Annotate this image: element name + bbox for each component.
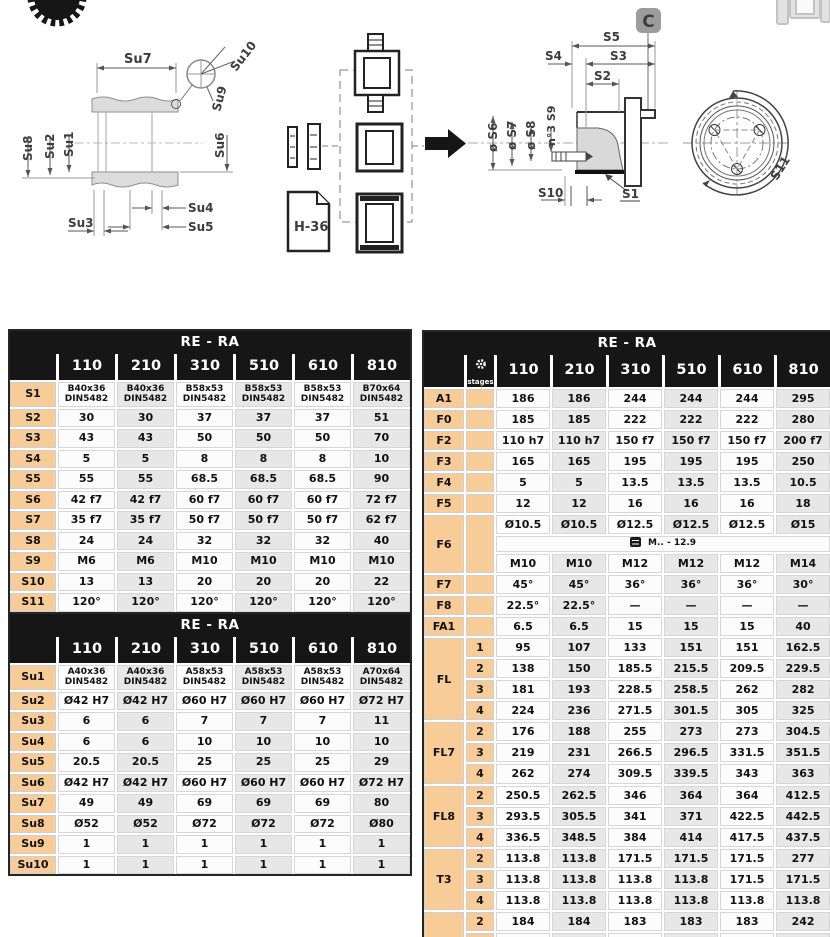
- table-cell: 422.5: [718, 805, 774, 826]
- row-label: S1: [10, 380, 56, 407]
- table-cell: 193: [550, 678, 606, 699]
- table-cell: 15: [718, 615, 774, 636]
- table-cell: A58x53 DIN5482: [292, 663, 351, 690]
- table-cell: 195: [718, 450, 774, 471]
- row-label: F0: [424, 408, 464, 429]
- table-cell: 43: [115, 427, 174, 448]
- stage-cell: 4: [464, 762, 494, 783]
- su-dimensions-table: RE - RA 110 210 310 510 610 810 Su1A40x3…: [8, 612, 412, 876]
- dim-label-s1: S1: [622, 187, 639, 201]
- row-label: S6: [10, 489, 56, 510]
- table-cell: 10.5: [774, 471, 830, 492]
- table-cell: 293.5: [494, 805, 550, 826]
- table-cell: 222: [718, 408, 774, 429]
- technical-drawings: Su10 Su9 Su7 Su8 Su2 Su1 Su6 Su3 Su4: [0, 0, 830, 322]
- table-cell: 133: [606, 636, 662, 657]
- stage-cell: 3: [464, 931, 494, 937]
- column-header: 310: [606, 355, 662, 387]
- bolt-class-label: M.. - 12.9: [648, 538, 696, 548]
- table-cell: 22: [351, 571, 410, 592]
- table-cell: 258.5: [662, 678, 718, 699]
- table-cell: A40x36 DIN5482: [115, 663, 174, 690]
- table-cell: 22.5°: [550, 594, 606, 615]
- c-badge-label: C: [642, 12, 654, 32]
- table-cell: 336.5: [494, 826, 550, 847]
- table-cell: 24: [115, 530, 174, 551]
- table-cell: 50 f7: [233, 509, 292, 530]
- table-cell: Ø42 H7: [56, 772, 115, 793]
- table-cell: 113.8: [550, 847, 606, 868]
- table-cell: 32: [233, 530, 292, 551]
- table-cell: 36°: [606, 573, 662, 594]
- row-label: FL8: [424, 784, 464, 847]
- table-cell: 200 f7: [774, 429, 830, 450]
- corner-cell: [10, 354, 56, 380]
- table-cell: 7: [174, 710, 233, 731]
- table-cell: 13: [56, 571, 115, 592]
- table-cell: 412.5: [774, 784, 830, 805]
- row-label: Su5: [10, 751, 56, 772]
- table-cell: 262: [494, 762, 550, 783]
- dim-label-s9: n°3 S9: [545, 106, 558, 146]
- table-cell: 12: [494, 492, 550, 513]
- stage-cell: 4: [464, 889, 494, 910]
- row-label: Su9: [10, 833, 56, 854]
- table-cell: Ø52: [56, 813, 115, 834]
- row-label: Su1: [10, 663, 56, 690]
- table-cell: 60 f7: [233, 489, 292, 510]
- row-label: F2: [424, 429, 464, 450]
- table-cell: 171.5: [662, 847, 718, 868]
- table-cell: 113.8: [494, 847, 550, 868]
- table-cell: 16: [606, 492, 662, 513]
- table-cell: 171.5: [774, 868, 830, 889]
- table-cell: 262: [718, 678, 774, 699]
- table-cell: Ø60 H7: [174, 772, 233, 793]
- table-cell: 107: [550, 636, 606, 657]
- table-cell: 271.5: [606, 699, 662, 720]
- table-cell: M10: [494, 552, 550, 573]
- dim-label-su4: Su4: [188, 201, 214, 215]
- table-cell: 364: [718, 784, 774, 805]
- table-cell: 266.5: [606, 741, 662, 762]
- table-cell: B40x36 DIN5482: [56, 380, 115, 407]
- table-cell: 215.5: [662, 657, 718, 678]
- gear-icon: [31, 0, 83, 23]
- table-cell: 113.8: [550, 868, 606, 889]
- table-cell: 10: [292, 731, 351, 752]
- table-cell: A58x53 DIN5482: [174, 663, 233, 690]
- column-header: 210: [115, 354, 174, 380]
- row-label: Su7: [10, 792, 56, 813]
- table-cell: 13: [115, 571, 174, 592]
- table-cell: 346: [606, 784, 662, 805]
- table-cell: 113.8: [662, 868, 718, 889]
- table-cell: 68.5: [292, 468, 351, 489]
- table-cell: 339.5: [662, 762, 718, 783]
- table-cell: 68.5: [233, 468, 292, 489]
- table-cell: 185: [494, 408, 550, 429]
- table-cell: 138: [494, 657, 550, 678]
- stage-cell: 4: [464, 826, 494, 847]
- column-header: 610: [292, 637, 351, 663]
- table-cell: 1: [292, 854, 351, 875]
- table-cell: 183: [718, 931, 774, 937]
- row-label: F4: [424, 471, 464, 492]
- table-cell: 7: [292, 710, 351, 731]
- table-cell: Ø10.5: [550, 513, 606, 534]
- stage-cell: 2: [464, 910, 494, 931]
- h36-label: H-36: [294, 220, 328, 235]
- table-cell: Ø10.5: [494, 513, 550, 534]
- table-cell: 62 f7: [351, 509, 410, 530]
- table-title: RE - RA: [424, 332, 830, 355]
- table-cell: 325: [774, 699, 830, 720]
- table-cell: 24: [56, 530, 115, 551]
- dim-label-s10: S10: [538, 186, 563, 200]
- column-header: 510: [233, 354, 292, 380]
- table-cell: 16: [718, 492, 774, 513]
- bolt-icon: [630, 537, 641, 547]
- table-cell: 35 f7: [56, 509, 115, 530]
- table-cell: 231: [550, 741, 606, 762]
- table-cell: 250.5: [494, 784, 550, 805]
- stage-cell: [464, 408, 494, 429]
- table-cell: 10: [174, 731, 233, 752]
- table-cell: 13.5: [662, 471, 718, 492]
- table-cell: 45°: [494, 573, 550, 594]
- table-cell: 51: [351, 407, 410, 428]
- table-cell: 30°: [774, 573, 830, 594]
- row-label: FL: [424, 636, 464, 720]
- table-cell: 20: [292, 571, 351, 592]
- table-cell: Ø12.5: [662, 513, 718, 534]
- table-cell: 364: [662, 784, 718, 805]
- stage-cell: [464, 471, 494, 492]
- table-cell: 183: [718, 910, 774, 931]
- table-cell: Ø80: [351, 813, 410, 834]
- table-cell: 250: [774, 450, 830, 471]
- dim-label-su2: Su2: [43, 133, 57, 159]
- stage-cell: 3: [464, 741, 494, 762]
- table-cell: 113.8: [606, 868, 662, 889]
- column-header: 810: [351, 354, 410, 380]
- row-label: F6: [424, 513, 464, 573]
- table-cell: 110 h7: [494, 429, 550, 450]
- table-cell: M12: [662, 552, 718, 573]
- dim-label-s4: S4: [545, 49, 562, 63]
- table-cell: 113.8: [550, 889, 606, 910]
- table-cell: 10: [233, 731, 292, 752]
- stage-cell: 3: [464, 805, 494, 826]
- table-cell: 195: [606, 450, 662, 471]
- table-cell: 22.5°: [494, 594, 550, 615]
- h36-document-icon: H-36: [288, 192, 329, 251]
- column-header: 110: [56, 354, 115, 380]
- table-cell: 242: [774, 910, 830, 931]
- table-cell: 273: [718, 720, 774, 741]
- table-cell: 50 f7: [174, 509, 233, 530]
- table-cell: 1: [174, 854, 233, 875]
- table-cell: —: [606, 594, 662, 615]
- table-cell: 331.5: [718, 741, 774, 762]
- table-cell: 185.5: [606, 657, 662, 678]
- stage-cell: [464, 615, 494, 636]
- table-cell: 305: [718, 699, 774, 720]
- table-cell: Ø15: [774, 513, 830, 534]
- table-cell: 16: [662, 492, 718, 513]
- table-cell: Ø60 H7: [174, 690, 233, 711]
- table-cell: —: [662, 594, 718, 615]
- table-cell: 1: [115, 854, 174, 875]
- stage-cell: 3: [464, 678, 494, 699]
- end-view-drawing: S11: [683, 90, 793, 198]
- table-cell: 236: [550, 699, 606, 720]
- table-cell: 55: [115, 468, 174, 489]
- table-cell: M.. - 12.9: [494, 534, 830, 552]
- table-cell: 120°: [56, 591, 115, 612]
- stage-cell: 4: [464, 699, 494, 720]
- table-cell: A70x64 DIN5482: [351, 663, 410, 690]
- table-cell: 5: [550, 471, 606, 492]
- table-cell: 25: [174, 751, 233, 772]
- table-cell: 348.5: [550, 826, 606, 847]
- dim-label-su9: Su9: [209, 84, 229, 112]
- dim-label-s6: ø S6: [486, 123, 500, 152]
- column-header: 110: [56, 637, 115, 663]
- stage-cell: 2: [464, 657, 494, 678]
- table-cell: 1: [233, 833, 292, 854]
- table-cell: 186: [494, 387, 550, 408]
- column-header: 210: [115, 637, 174, 663]
- table-cell: Ø12.5: [606, 513, 662, 534]
- table-cell: 442.5: [774, 805, 830, 826]
- table-cell: 90: [351, 468, 410, 489]
- table-cell: 363: [774, 762, 830, 783]
- dim-label-s5: S5: [603, 30, 620, 44]
- table-cell: 171.5: [718, 847, 774, 868]
- dim-label-su7: Su7: [124, 52, 152, 67]
- table-cell: Ø72 H7: [351, 772, 410, 793]
- table-cell: 70: [351, 427, 410, 448]
- dim-label-s8: ø S8: [524, 121, 538, 150]
- table-cell: 55: [56, 468, 115, 489]
- dim-label-s3: S3: [610, 49, 627, 63]
- table-cell: 37: [174, 407, 233, 428]
- row-label: T4: [424, 910, 464, 937]
- stages-header: stages: [464, 355, 494, 387]
- table-cell: 273: [662, 720, 718, 741]
- table-cell: —: [718, 594, 774, 615]
- table-cell: A40x36 DIN5482: [56, 663, 115, 690]
- table-cell: B58x53 DIN5482: [233, 380, 292, 407]
- corner-cell: [10, 637, 56, 663]
- table-cell: 11: [351, 710, 410, 731]
- row-label: F8: [424, 594, 464, 615]
- table-cell: 8: [292, 448, 351, 469]
- row-label: T3: [424, 847, 464, 910]
- table-cell: 120°: [233, 591, 292, 612]
- table-cell: Ø42 H7: [56, 690, 115, 711]
- table-cell: 262.5: [550, 784, 606, 805]
- table-cell: 184: [550, 931, 606, 937]
- table-cell: Ø42 H7: [115, 690, 174, 711]
- table-cell: —: [774, 594, 830, 615]
- dim-label-su6: Su6: [213, 132, 227, 158]
- table-cell: 69: [174, 792, 233, 813]
- table-cell: 224: [494, 699, 550, 720]
- table-cell: M6: [115, 550, 174, 571]
- row-label: F3: [424, 450, 464, 471]
- table-cell: 186: [550, 387, 606, 408]
- table-cell: M10: [292, 550, 351, 571]
- table-cell: 184: [550, 910, 606, 931]
- table-cell: 50: [233, 427, 292, 448]
- table-cell: 1: [56, 833, 115, 854]
- table-cell: 1: [174, 833, 233, 854]
- stage-cell: 1: [464, 636, 494, 657]
- stage-cell: [464, 594, 494, 615]
- table-cell: 113.8: [494, 889, 550, 910]
- table-cell: 171.5: [718, 868, 774, 889]
- table-cell: 185: [550, 408, 606, 429]
- table-cell: 80: [351, 792, 410, 813]
- table-cell: 184: [494, 931, 550, 937]
- table-cell: 6.5: [494, 615, 550, 636]
- table-cell: 162.5: [774, 636, 830, 657]
- table-cell: 68.5: [174, 468, 233, 489]
- table-cell: 13.5: [606, 471, 662, 492]
- table-cell: 274: [550, 762, 606, 783]
- table-cell: M14: [774, 552, 830, 573]
- table-cell: 277: [774, 847, 830, 868]
- table-cell: 222: [662, 408, 718, 429]
- table-cell: 110 h7: [550, 429, 606, 450]
- row-label: A1: [424, 387, 464, 408]
- table-cell: M10: [550, 552, 606, 573]
- table-cell: 150 f7: [718, 429, 774, 450]
- table-cell: 7: [233, 710, 292, 731]
- table-cell: 171.5: [606, 847, 662, 868]
- dim-label-s11: S11: [768, 154, 793, 183]
- table-cell: 95: [494, 636, 550, 657]
- table-cell: 113.8: [718, 889, 774, 910]
- stage-cell: [464, 429, 494, 450]
- table-cell: 49: [56, 792, 115, 813]
- row-label: Su8: [10, 813, 56, 834]
- table-cell: 1: [351, 854, 410, 875]
- row-label: S10: [10, 571, 56, 592]
- table-cell: 188: [550, 720, 606, 741]
- row-label: Su3: [10, 710, 56, 731]
- table-cell: 301.5: [662, 699, 718, 720]
- row-label: Su6: [10, 772, 56, 793]
- column-header: 610: [292, 354, 351, 380]
- table-cell: 6: [115, 731, 174, 752]
- table-cell: 113.8: [606, 889, 662, 910]
- table-cell: 280: [774, 408, 830, 429]
- arrow-icon: [425, 129, 466, 158]
- table-cell: 25: [233, 751, 292, 772]
- c-badge: C: [636, 8, 661, 33]
- table-cell: 8: [233, 448, 292, 469]
- table-cell: 50: [292, 427, 351, 448]
- table-cell: 13.5: [718, 471, 774, 492]
- stage-cell: 2: [464, 720, 494, 741]
- table-cell: 176: [494, 720, 550, 741]
- table-cell: 1: [56, 854, 115, 875]
- table-cell: 151: [662, 636, 718, 657]
- column-header: 310: [174, 637, 233, 663]
- table-cell: 417.5: [718, 826, 774, 847]
- table-cell: 50: [174, 427, 233, 448]
- table-cell: M12: [718, 552, 774, 573]
- table-cell: Ø72 H7: [351, 690, 410, 711]
- table-cell: 165: [494, 450, 550, 471]
- corner-cell: [424, 355, 464, 387]
- row-label: F7: [424, 573, 464, 594]
- stage-cell: [464, 450, 494, 471]
- row-label: S4: [10, 448, 56, 469]
- table-cell: 1: [351, 833, 410, 854]
- table-cell: Ø60 H7: [233, 690, 292, 711]
- table-cell: 371: [662, 805, 718, 826]
- s-dimensions-table: RE - RA 110 210 310 510 610 810 S1B40x36…: [8, 329, 412, 614]
- table-cell: 15: [606, 615, 662, 636]
- row-label: S5: [10, 468, 56, 489]
- table-cell: B58x53 DIN5482: [174, 380, 233, 407]
- table-cell: 8: [174, 448, 233, 469]
- table-cell: 228.5: [606, 678, 662, 699]
- table-cell: 43: [56, 427, 115, 448]
- row-label: Su2: [10, 690, 56, 711]
- table-cell: 414: [662, 826, 718, 847]
- table-cell: 29: [351, 751, 410, 772]
- table-cell: Ø60 H7: [292, 772, 351, 793]
- table-cell: 42 f7: [56, 489, 115, 510]
- table-cell: 165: [550, 450, 606, 471]
- table-cell: 341: [606, 805, 662, 826]
- table-cell: 40: [351, 530, 410, 551]
- table-cell: 351.5: [774, 741, 830, 762]
- table-cell: 296.5: [662, 741, 718, 762]
- shaft-drawing: Su10 Su9 Su7 Su8 Su2 Su1 Su6 Su3 Su4: [21, 39, 259, 236]
- column-header: 110: [494, 355, 550, 387]
- table-cell: Ø52: [115, 813, 174, 834]
- table-cell: 20.5: [115, 751, 174, 772]
- table-cell: 255: [606, 720, 662, 741]
- row-label: Su10: [10, 854, 56, 875]
- table-cell: 30: [115, 407, 174, 428]
- row-label: S3: [10, 427, 56, 448]
- dim-label-su5: Su5: [188, 220, 214, 234]
- stage-cell: 2: [464, 784, 494, 805]
- dim-label-s7: ø S7: [505, 121, 519, 150]
- table-cell: 5: [56, 448, 115, 469]
- table-cell: 150 f7: [606, 429, 662, 450]
- column-header: 510: [233, 637, 292, 663]
- catalog-page: Su10 Su9 Su7 Su8 Su2 Su1 Su6 Su3 Su4: [0, 0, 830, 937]
- table-cell: 15: [662, 615, 718, 636]
- table-cell: 120°: [174, 591, 233, 612]
- stages-label: stages: [467, 379, 494, 386]
- table-cell: 183: [662, 910, 718, 931]
- stage-cell: [464, 387, 494, 408]
- table-cell: 6.5: [550, 615, 606, 636]
- column-header: 310: [174, 354, 233, 380]
- stage-cell: [464, 573, 494, 594]
- row-label: S11: [10, 591, 56, 612]
